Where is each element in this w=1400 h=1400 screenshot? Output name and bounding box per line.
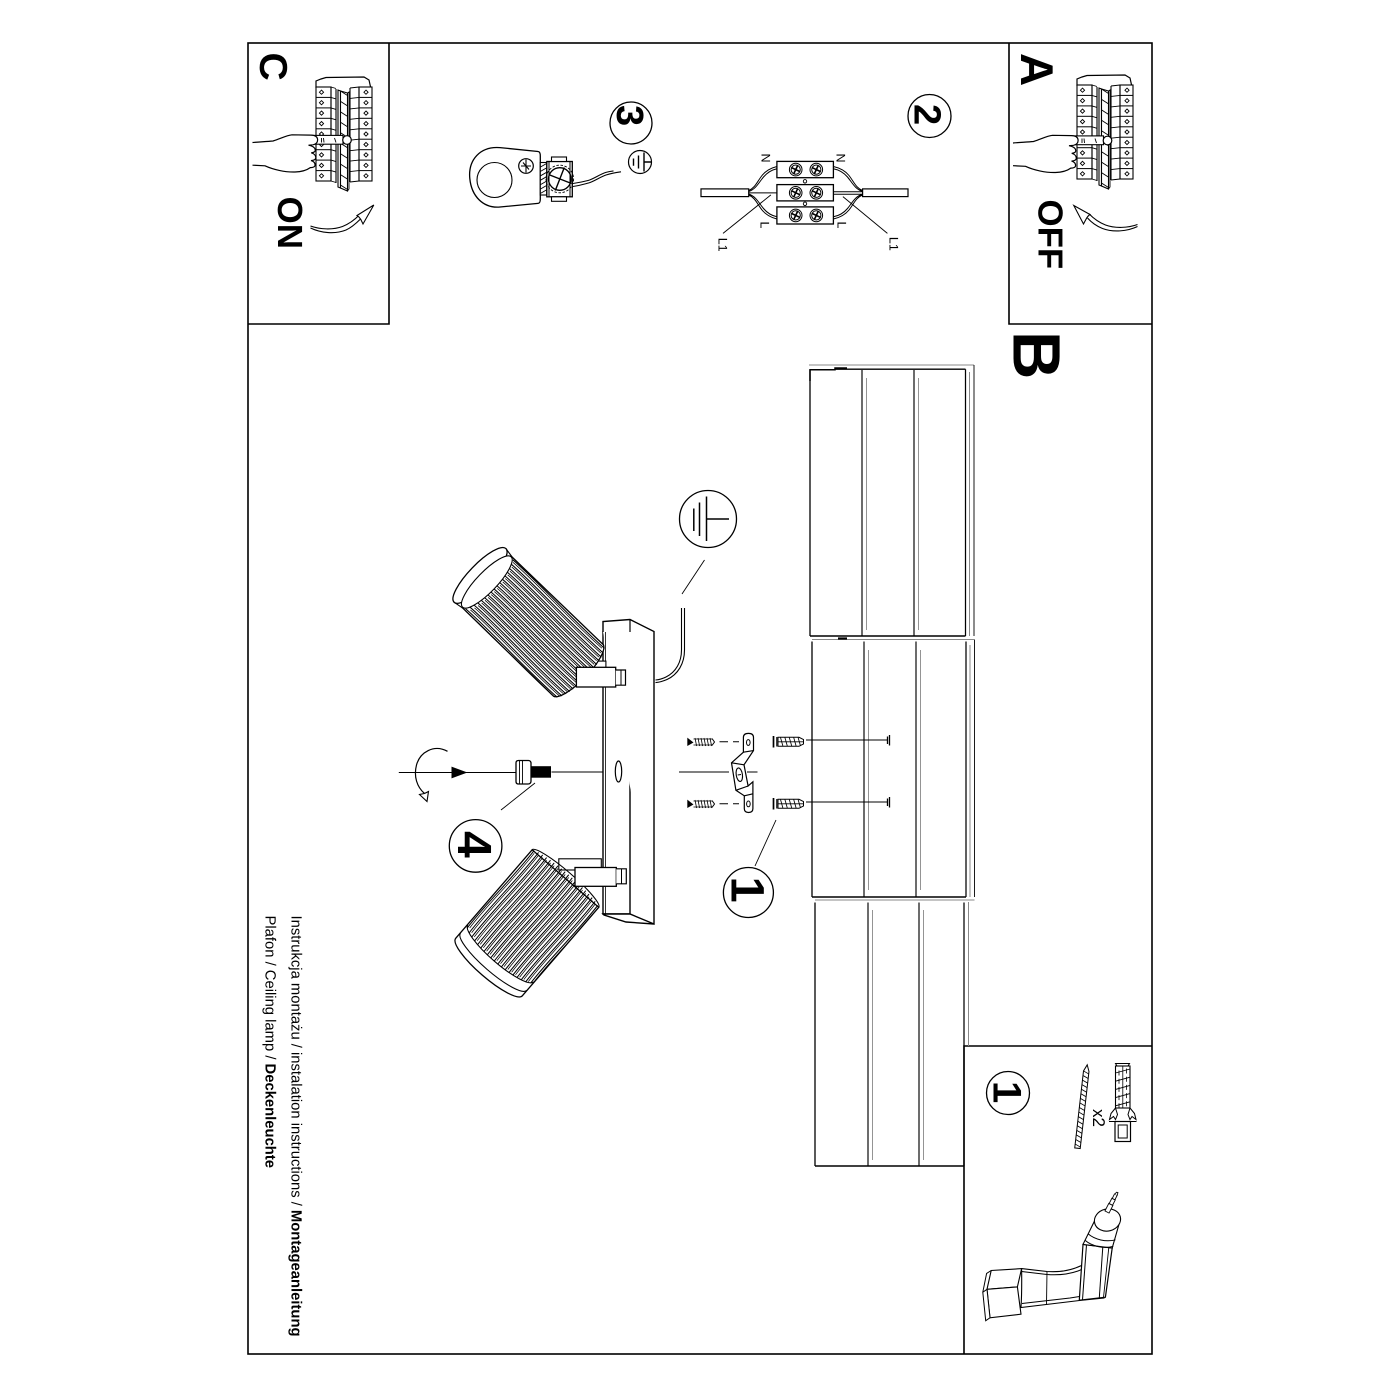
svg-text:L1: L1: [716, 238, 730, 252]
svg-text:N: N: [834, 154, 848, 163]
svg-text:x2: x2: [1089, 1109, 1108, 1127]
svg-text:L1: L1: [887, 237, 901, 251]
svg-text:B: B: [999, 331, 1074, 379]
svg-text:C: C: [251, 53, 294, 81]
svg-text:2: 2: [906, 104, 948, 125]
svg-text:1: 1: [985, 1081, 1029, 1103]
svg-text:N: N: [759, 154, 773, 163]
svg-text:4: 4: [447, 831, 500, 858]
svg-text:L: L: [758, 222, 772, 229]
svg-text:Plafon / Ceiling lamp / Decken: Plafon / Ceiling lamp / Deckenleuchte: [261, 916, 277, 1169]
svg-text:A: A: [1011, 53, 1063, 86]
svg-text:Instrukcja montażu / instalati: Instrukcja montażu / instalation instruc…: [287, 916, 303, 1337]
svg-text:ON: ON: [270, 197, 309, 250]
svg-text:OFF: OFF: [1031, 200, 1070, 270]
svg-text:1: 1: [722, 877, 775, 903]
svg-text:L: L: [835, 222, 849, 229]
svg-text:3: 3: [608, 105, 650, 126]
